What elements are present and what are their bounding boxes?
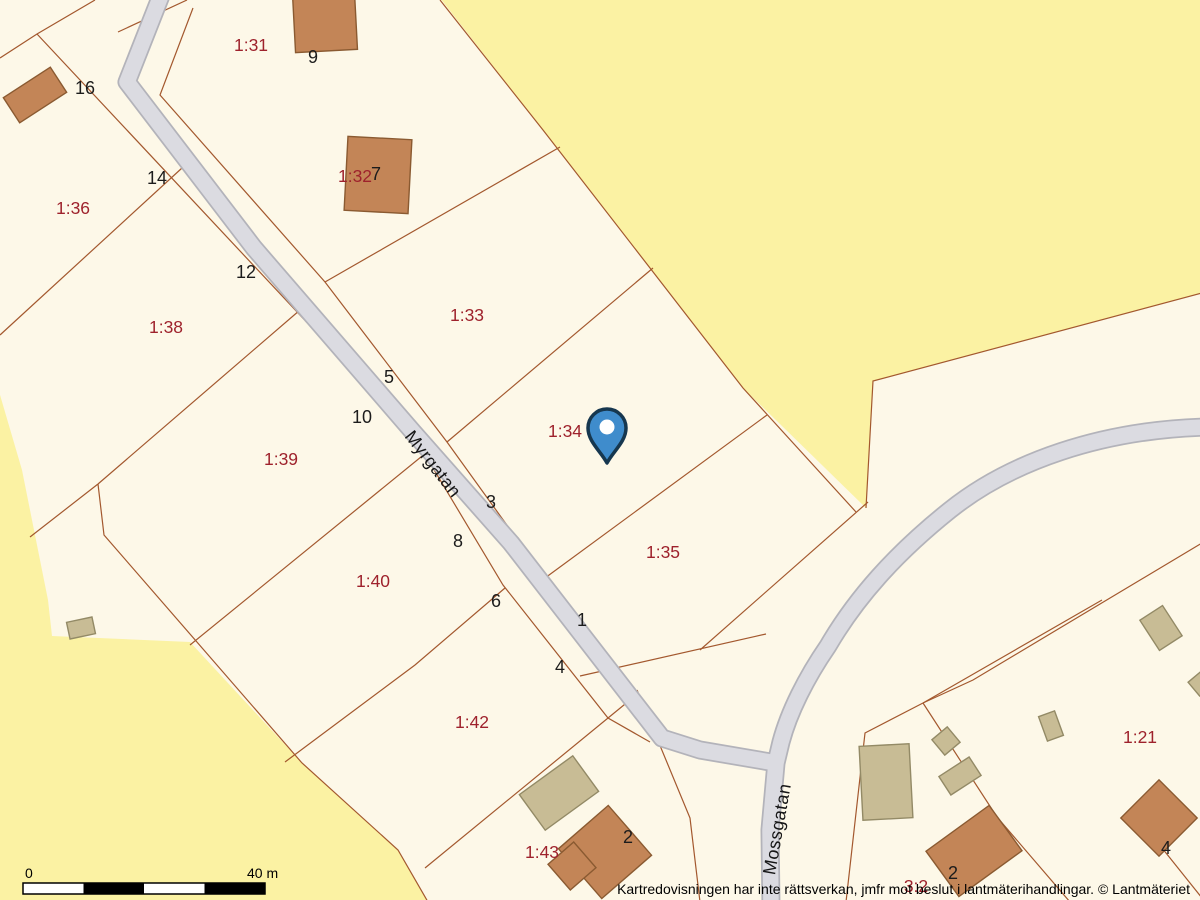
parcel-label-1-21: 1:21	[1123, 727, 1157, 747]
parcel-label-1-31: 1:31	[234, 35, 268, 55]
house-number-10: 10	[352, 407, 372, 427]
scale-end-label: 40 m	[247, 865, 278, 881]
house-number-2: 2	[948, 863, 958, 883]
building-outbuilding	[859, 744, 913, 821]
map-canvas[interactable]: MyrgatanMossgatan 1:311:321:361:331:381:…	[0, 0, 1200, 900]
house-number-16: 16	[75, 78, 95, 98]
house-number-8: 8	[453, 531, 463, 551]
parcel-label-1-43: 1:43	[525, 842, 559, 862]
house-number-4: 4	[1161, 838, 1171, 858]
house-number-2: 2	[623, 827, 633, 847]
parcel-label-1-38: 1:38	[149, 317, 183, 337]
house-number-5: 5	[384, 367, 394, 387]
house-number-9: 9	[308, 47, 318, 67]
map-pin-hole	[600, 420, 615, 435]
attribution: Kartredovisningen har inte rättsverkan, …	[617, 881, 1190, 897]
parcel-label-1-36: 1:36	[56, 198, 90, 218]
house-number-14: 14	[147, 168, 167, 188]
scale-bar-segment	[205, 883, 266, 894]
parcel-label-1-39: 1:39	[264, 449, 298, 469]
house-number-7: 7	[371, 164, 381, 184]
house-number-1: 1	[577, 610, 587, 630]
parcel-label-1-34: 1:34	[548, 421, 582, 441]
cadastral-map[interactable]: MyrgatanMossgatan 1:311:321:361:331:381:…	[0, 0, 1200, 900]
house-number-3: 3	[486, 492, 496, 512]
parcel-label-1-42: 1:42	[455, 712, 489, 732]
parcel-label-1-35: 1:35	[646, 542, 680, 562]
parcel-label-1-32: 1:32	[338, 166, 372, 186]
scale-bar-segment	[84, 883, 145, 894]
parcel-label-1-33: 1:33	[450, 305, 484, 325]
scale-start-label: 0	[25, 865, 33, 881]
house-number-12: 12	[236, 262, 256, 282]
house-number-4: 4	[555, 657, 565, 677]
parcel-label-1-40: 1:40	[356, 571, 390, 591]
house-number-6: 6	[491, 591, 501, 611]
building-house	[293, 0, 358, 53]
